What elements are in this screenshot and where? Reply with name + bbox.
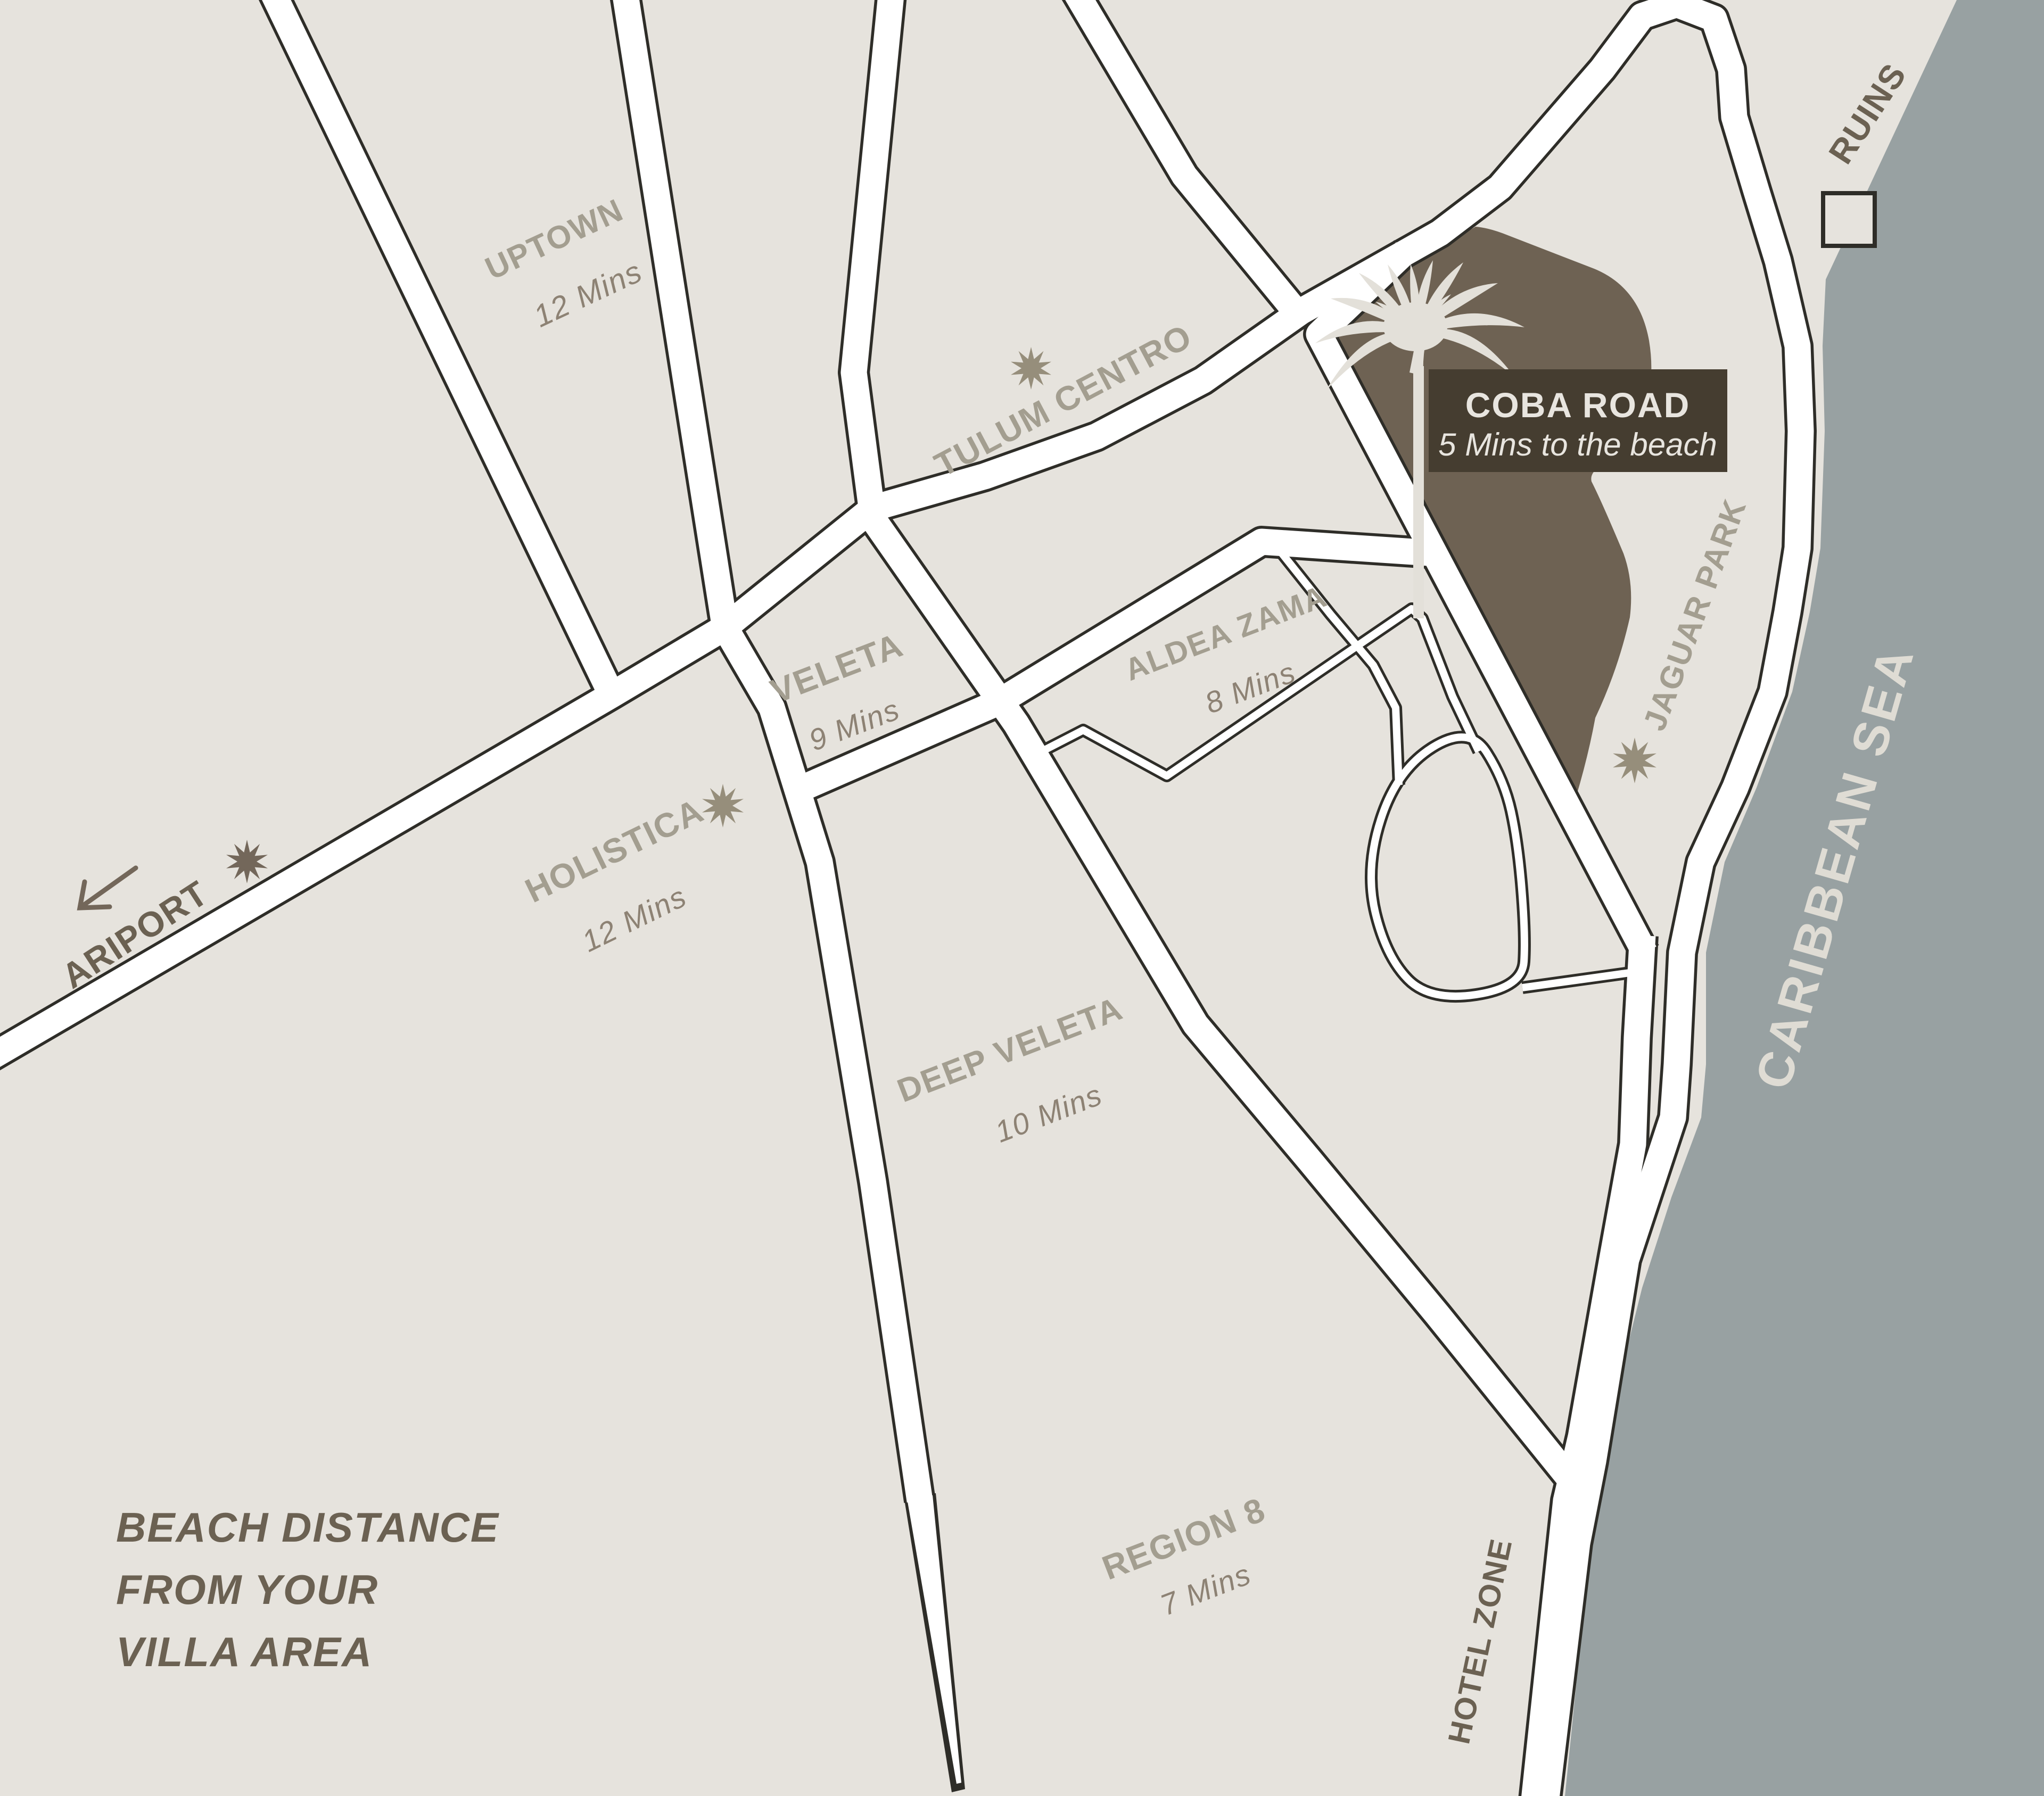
svg-text:COBA ROAD: COBA ROAD [1465, 385, 1691, 425]
svg-text:5 Mins to the beach: 5 Mins to the beach [1438, 427, 1717, 462]
svg-text:BEACH DISTANCE: BEACH DISTANCE [116, 1504, 499, 1551]
svg-text:VILLA AREA: VILLA AREA [116, 1628, 373, 1675]
svg-text:FROM YOUR: FROM YOUR [116, 1566, 378, 1613]
